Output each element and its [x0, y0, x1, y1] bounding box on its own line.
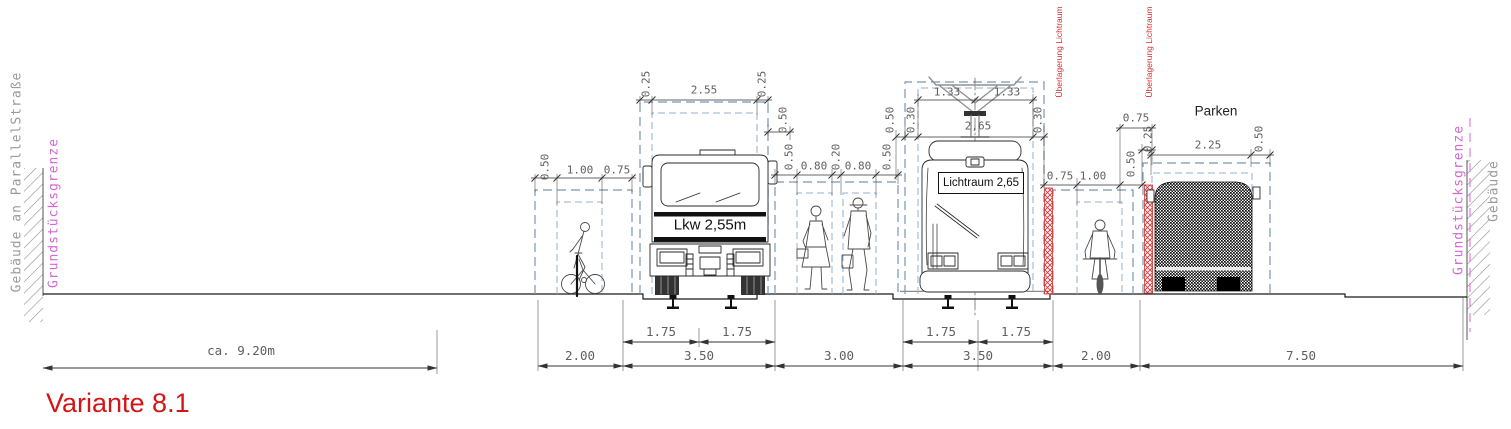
- truck-mirror-right: [768, 161, 777, 184]
- cyclist-left: [562, 223, 605, 297]
- car-mirror-right: [1253, 187, 1260, 199]
- dim-label: 1.75: [926, 326, 956, 339]
- pedestrian-man: [842, 198, 871, 290]
- tram-skirt: [920, 271, 1030, 292]
- dimension-chain-lines: [531, 100, 1274, 185]
- parking-zone-label: Parken: [1195, 104, 1238, 118]
- dim-label: 1.33: [994, 87, 1021, 98]
- dim-label: 0.80: [845, 161, 872, 172]
- dim-label: 2.00: [565, 350, 595, 363]
- drawing-canvas: [0, 0, 1511, 429]
- dim-label: 0.30: [1033, 107, 1044, 134]
- tram-drawing: [920, 77, 1030, 318]
- dim-label: 2.55: [691, 85, 718, 96]
- dim-label: 1.33: [934, 87, 961, 98]
- pedestrian-figures: [797, 198, 871, 290]
- left-property-line-label: Grundstücksgrenze: [48, 138, 61, 288]
- dim-label: 0.50: [882, 144, 893, 171]
- dim-label: 3.50: [963, 350, 993, 363]
- dim-label: 0.75: [604, 165, 631, 176]
- dim-label: 7.50: [1286, 350, 1316, 363]
- dim-label: 0.25: [757, 71, 768, 98]
- bike-wheel: [1097, 274, 1104, 294]
- left-boundary-hatch: [24, 168, 43, 322]
- dim-label: 2.00: [1081, 350, 1111, 363]
- dim-label: 0.50: [784, 144, 795, 171]
- dim-label: 1.75: [1001, 326, 1031, 339]
- truck-wheel-right: [741, 274, 765, 295]
- dim-label: 0.25: [641, 71, 652, 98]
- truck-wheel-left: [655, 274, 679, 295]
- car-wheel-left: [1162, 277, 1185, 291]
- envelope-cyclist-left: [535, 190, 632, 294]
- dim-label: 0.75: [1047, 171, 1074, 182]
- dim-label: 0.30: [906, 107, 917, 134]
- dim-label: ca. 9.20m: [207, 345, 275, 358]
- dim-label: 0.50: [540, 154, 551, 181]
- dim-label: 0.20: [831, 144, 842, 171]
- envelope-cyclist-right: [1053, 190, 1133, 294]
- envelope-pedestrians: [775, 182, 898, 294]
- dim-label: 0.50: [1254, 126, 1265, 153]
- dim-label: 1.00: [1080, 171, 1107, 182]
- right-boundary-hatch: [1467, 118, 1490, 340]
- dim-label: 2,65: [965, 121, 992, 132]
- truck-width-label: Lkw 2,55m: [674, 218, 747, 233]
- dim-label: 3.50: [684, 350, 714, 363]
- car-mirror-left: [1147, 190, 1154, 202]
- tram-rails: [667, 295, 1018, 309]
- truck-mirror-left: [643, 166, 652, 187]
- handbag: [797, 249, 808, 258]
- overlap-label-right: Überlagerung Lichtraum: [1145, 6, 1154, 97]
- dim-label: 0.75: [1123, 113, 1150, 124]
- dim-label: 0.50: [778, 107, 789, 134]
- dim-label: 1.75: [722, 326, 752, 339]
- truck-windshield: [661, 163, 759, 206]
- car-wheel-right: [1217, 277, 1240, 291]
- variant-title: Variante 8.1: [46, 390, 190, 417]
- right-property-line-label: Grundstücksgrenze: [1453, 125, 1466, 275]
- tram-clearance-label-box: Lichtraum 2,65: [938, 172, 1024, 194]
- dim-label: 0.50: [1126, 151, 1137, 178]
- overlap-strip-left: [1045, 188, 1053, 294]
- dim-label: 1.00: [567, 165, 594, 176]
- overlap-label-left: Überlagerung Lichtraum: [1055, 6, 1064, 97]
- tram-clearance-label: Lichtraum 2,65: [943, 177, 1019, 189]
- street-cross-section-drawing: 0.252.550.250.500.501.000.750.500.800.20…: [0, 0, 1511, 429]
- dim-label: 2.25: [1195, 140, 1222, 151]
- dim-label: 0.50: [885, 107, 896, 134]
- parked-car: [1147, 182, 1260, 291]
- pedestrian-woman: [797, 206, 830, 289]
- dim-label: 3.00: [824, 350, 854, 363]
- left-building-label: Gebäude an ParallelStraße: [11, 72, 24, 293]
- cyclist-right: [1083, 220, 1117, 294]
- dim-label: 0.25: [1143, 126, 1154, 153]
- right-building-label: Gebäude: [1488, 160, 1501, 222]
- dim-label: 1.75: [646, 326, 676, 339]
- dim-label: 0.80: [801, 161, 828, 172]
